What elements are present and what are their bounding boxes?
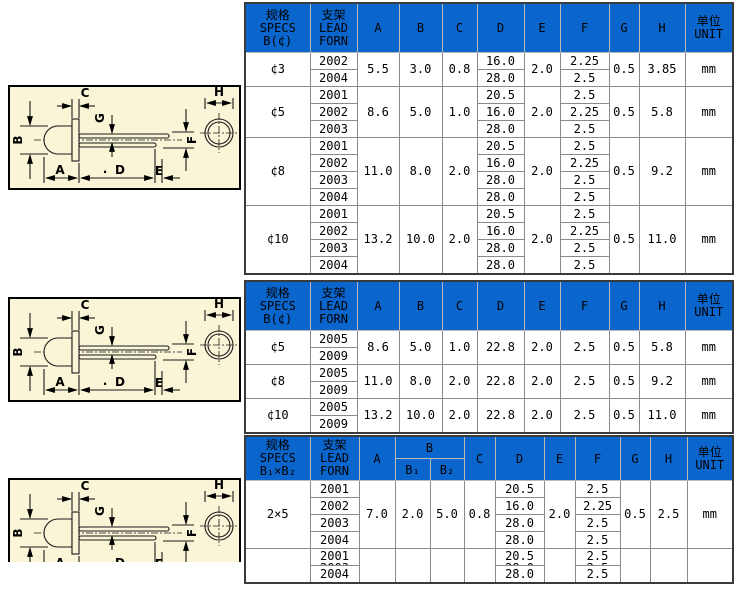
cell-F: 2.5	[560, 206, 609, 223]
cell-lead: 2002	[310, 223, 357, 240]
cell-C	[464, 549, 495, 584]
header-row: 规格SPECSB₁×B₂支架LEADFORNABCDEFGH单位UNIT	[245, 436, 733, 459]
header-row: 规格SPECSB(¢)支架LEADFORNABCDEFGH单位UNIT	[245, 3, 733, 53]
cell-C: 2.0	[442, 399, 477, 434]
cell-D: 16.0	[477, 53, 524, 70]
header-dim-A: A	[359, 436, 395, 481]
cell-F: 2.25	[560, 223, 609, 240]
cell-lead: 2002	[310, 155, 357, 172]
cell-B: 5.0	[399, 87, 442, 138]
cell-D: 28.0	[477, 70, 524, 87]
cell-lead: 2003	[310, 172, 357, 189]
cell-B2	[430, 549, 464, 584]
datasheet-page: B C G F	[0, 0, 734, 589]
header-dim-C: C	[442, 281, 477, 331]
cell-lead: 2001	[310, 87, 357, 104]
cell-B: 10.0	[399, 206, 442, 275]
cell-G: 0.5	[609, 53, 639, 87]
cell-D: 16.0	[477, 104, 524, 121]
cell-lead: 2005	[310, 399, 357, 416]
cell-C: 1.0	[442, 331, 477, 365]
cell-lead: 2001	[310, 481, 359, 498]
cell-unit: mm	[687, 481, 733, 549]
cell-lead: 2004	[310, 189, 357, 206]
header-lead-form: 支架LEADFORN	[310, 436, 359, 481]
cell-D: 28.0	[495, 515, 544, 532]
cell-H: 5.8	[639, 331, 685, 365]
header-dim-G: G	[609, 3, 639, 53]
cell-C: 0.8	[464, 481, 495, 549]
cell-F: 2.25	[560, 104, 609, 121]
cell-C: 0.8	[442, 53, 477, 87]
cell-E: 2.0	[524, 331, 560, 365]
table-row: ¢520058.65.01.022.82.02.50.55.8mm	[245, 331, 733, 348]
header-dim-F: F	[560, 281, 609, 331]
cell-B1	[395, 549, 430, 584]
header-dim-A: A	[357, 281, 399, 331]
cell-lead: 2003	[310, 240, 357, 257]
cell-D: 20.5	[477, 87, 524, 104]
cell-E: 2.0	[544, 481, 575, 549]
cell-unit	[687, 549, 733, 584]
cell-lead: 2003	[310, 515, 359, 532]
header-dim-E: E	[524, 281, 560, 331]
cell-A: 13.2	[357, 399, 399, 434]
led-diagram-round-long	[8, 297, 241, 402]
cell-A: 13.2	[357, 206, 399, 275]
cell-unit: mm	[685, 331, 733, 365]
header-row: 规格SPECSB(¢)支架LEADFORNABCDEFGH单位UNIT	[245, 281, 733, 331]
cell-lead: 20012003	[310, 549, 359, 566]
cell-F: 2.5	[560, 399, 609, 434]
cell-H: 5.8	[639, 87, 685, 138]
cell-F: 2.5	[560, 365, 609, 399]
cell-spec: ¢8	[245, 365, 310, 399]
cell-B2: 5.0	[430, 481, 464, 549]
cell-unit: mm	[685, 365, 733, 399]
table-row: 2001200320.528.02.52.5	[245, 549, 733, 566]
cell-C: 2.0	[442, 138, 477, 206]
cell-lead: 2009	[310, 382, 357, 399]
cell-lead: 2009	[310, 348, 357, 365]
cell-F: 2.5	[560, 121, 609, 138]
cell-lead: 2004	[310, 70, 357, 87]
cell-unit: mm	[685, 53, 733, 87]
cell-unit: mm	[685, 87, 733, 138]
header-dim-D: D	[477, 3, 524, 53]
header-dim-B: B	[399, 281, 442, 331]
cell-lead: 2002	[310, 53, 357, 70]
table-row: ¢10200113.210.02.020.52.02.50.511.0mm	[245, 206, 733, 223]
cell-spec: 2×5	[245, 481, 310, 549]
cell-A: 11.0	[357, 365, 399, 399]
header-spec: 规格SPECSB₁×B₂	[245, 436, 310, 481]
cell-G: 0.5	[620, 481, 650, 549]
header-dim-B: B	[395, 436, 464, 459]
table-row: ¢8200111.08.02.020.52.02.50.59.2mm	[245, 138, 733, 155]
cell-F: 2.52.5	[575, 549, 620, 566]
cell-D: 28.0	[477, 240, 524, 257]
header-spec: 规格SPECSB(¢)	[245, 3, 310, 53]
header-spec: 规格SPECSB(¢)	[245, 281, 310, 331]
cell-unit: mm	[685, 206, 733, 275]
spec-table-round-led: 规格SPECSB(¢)支架LEADFORNABCDEFGH单位UNIT¢3200…	[244, 2, 734, 275]
cell-F: 2.5	[575, 566, 620, 584]
cell-spec: ¢10	[245, 399, 310, 434]
led-diagram-round	[8, 85, 241, 190]
cell-G: 0.5	[609, 138, 639, 206]
cell-B: 10.0	[399, 399, 442, 434]
cell-G: 0.5	[609, 206, 639, 275]
cell-E: 2.0	[524, 399, 560, 434]
cell-lead: 2001	[310, 206, 357, 223]
cell-F: 2.5	[575, 515, 620, 532]
cell-A: 7.0	[359, 481, 395, 549]
cell-F: 2.25	[560, 155, 609, 172]
header-dim-H: H	[639, 3, 685, 53]
cell-D: 28.0	[477, 257, 524, 275]
table-row: ¢10200513.210.02.022.82.02.50.511.0mm	[245, 399, 733, 416]
cell-C: 2.0	[442, 365, 477, 399]
cell-H: 9.2	[639, 138, 685, 206]
cell-D: 22.8	[477, 331, 524, 365]
header-dim-E: E	[524, 3, 560, 53]
cell-D: 28.0	[477, 121, 524, 138]
cell-F: 2.5	[575, 481, 620, 498]
cell-lead: 2005	[310, 331, 357, 348]
header-dim-G: G	[609, 281, 639, 331]
cell-E: 2.0	[524, 365, 560, 399]
cell-lead: 2002	[310, 104, 357, 121]
header-dim-H: H	[650, 436, 687, 481]
cell-D: 22.8	[477, 365, 524, 399]
cell-E: 2.0	[524, 138, 560, 206]
cell-F: 2.5	[560, 257, 609, 275]
cell-F: 2.5	[560, 70, 609, 87]
header-dim-G: G	[620, 436, 650, 481]
cell-D: 20.5	[477, 138, 524, 155]
cell-D: 28.0	[477, 172, 524, 189]
cell-E	[544, 549, 575, 584]
cell-lead: 2005	[310, 365, 357, 382]
spec-table-long-lead: 规格SPECSB(¢)支架LEADFORNABCDEFGH单位UNIT¢5200…	[244, 280, 734, 434]
header-dim-E: E	[544, 436, 575, 481]
cell-A: 11.0	[357, 138, 399, 206]
cell-lead: 2001	[310, 138, 357, 155]
header-dim-F: F	[560, 3, 609, 53]
cell-lead: 2004	[310, 532, 359, 549]
cell-E: 2.0	[524, 87, 560, 138]
cell-D: 20.5	[477, 206, 524, 223]
led-diagram-rect-clipped	[8, 478, 241, 562]
cell-D: 28.0	[495, 532, 544, 549]
cell-B: 3.0	[399, 53, 442, 87]
header-unit: 单位UNIT	[685, 281, 733, 331]
cell-F: 2.25	[560, 53, 609, 70]
cell-F: 2.5	[560, 331, 609, 365]
cell-F: 2.5	[560, 87, 609, 104]
cell-F: 2.5	[575, 532, 620, 549]
cell-B: 5.0	[399, 331, 442, 365]
cell-C: 2.0	[442, 206, 477, 275]
header-dim-F: F	[575, 436, 620, 481]
cell-spec	[245, 549, 310, 584]
cell-D: 16.0	[477, 155, 524, 172]
cell-D: 16.0	[477, 223, 524, 240]
table-row: ¢520018.65.01.020.52.02.50.55.8mm	[245, 87, 733, 104]
cell-E: 2.0	[524, 53, 560, 87]
header-dim-C: C	[464, 436, 495, 481]
cell-D: 28.0	[495, 566, 544, 584]
header-lead-form: 支架LEADFORN	[310, 3, 357, 53]
cell-A: 8.6	[357, 331, 399, 365]
cell-G	[620, 549, 650, 584]
cell-spec: ¢3	[245, 53, 310, 87]
cell-A	[359, 549, 395, 584]
cell-E: 2.0	[524, 206, 560, 275]
cell-H: 9.2	[639, 365, 685, 399]
cell-G: 0.5	[609, 331, 639, 365]
cell-A: 5.5	[357, 53, 399, 87]
cell-unit: mm	[685, 399, 733, 434]
cell-lead: 2002	[310, 498, 359, 515]
cell-G: 0.5	[609, 365, 639, 399]
header-dim-B: B	[399, 3, 442, 53]
cell-D: 20.5	[495, 481, 544, 498]
cell-G: 0.5	[609, 399, 639, 434]
table-row: ¢320025.53.00.816.02.02.250.53.85mm	[245, 53, 733, 70]
cell-F: 2.5	[560, 138, 609, 155]
cell-G: 0.5	[609, 87, 639, 138]
cell-B: 8.0	[399, 365, 442, 399]
cell-spec: ¢5	[245, 331, 310, 365]
cell-D: 28.0	[477, 189, 524, 206]
cell-C: 1.0	[442, 87, 477, 138]
cell-A: 8.6	[357, 87, 399, 138]
cell-spec: ¢8	[245, 138, 310, 206]
cell-D: 20.528.0	[495, 549, 544, 566]
cell-lead: 2004	[310, 566, 359, 584]
cell-D: 16.0	[495, 498, 544, 515]
cell-spec: ¢10	[245, 206, 310, 275]
cell-H: 3.85	[639, 53, 685, 87]
header-unit: 单位UNIT	[685, 3, 733, 53]
cell-lead: 2003	[310, 121, 357, 138]
cell-lead: 2009	[310, 416, 357, 434]
cell-F: 2.25	[575, 498, 620, 515]
cell-F: 2.5	[560, 189, 609, 206]
cell-B: 8.0	[399, 138, 442, 206]
header-dim-A: A	[357, 3, 399, 53]
cell-F: 2.5	[560, 172, 609, 189]
header-dim-D: D	[495, 436, 544, 481]
cell-H: 2.5	[650, 481, 687, 549]
header-unit: 单位UNIT	[687, 436, 733, 481]
cell-H: 11.0	[639, 206, 685, 275]
cell-H	[650, 549, 687, 584]
cell-H: 11.0	[639, 399, 685, 434]
header-dim-H: H	[639, 281, 685, 331]
header-dim-C: C	[442, 3, 477, 53]
cell-spec: ¢5	[245, 87, 310, 138]
cell-unit: mm	[685, 138, 733, 206]
spec-table-rect-led: 规格SPECSB₁×B₂支架LEADFORNABCDEFGH单位UNITB₁B₂…	[244, 435, 734, 584]
cell-lead: 2004	[310, 257, 357, 275]
header-dim-B2: B₂	[430, 459, 464, 481]
cell-D: 22.8	[477, 399, 524, 434]
cell-B1: 2.0	[395, 481, 430, 549]
cell-F: 2.5	[560, 240, 609, 257]
header-dim-B1: B₁	[395, 459, 430, 481]
table-row: ¢8200511.08.02.022.82.02.50.59.2mm	[245, 365, 733, 382]
header-lead-form: 支架LEADFORN	[310, 281, 357, 331]
table-row: 2×520017.02.05.00.820.52.02.50.52.5mm	[245, 481, 733, 498]
header-dim-D: D	[477, 281, 524, 331]
